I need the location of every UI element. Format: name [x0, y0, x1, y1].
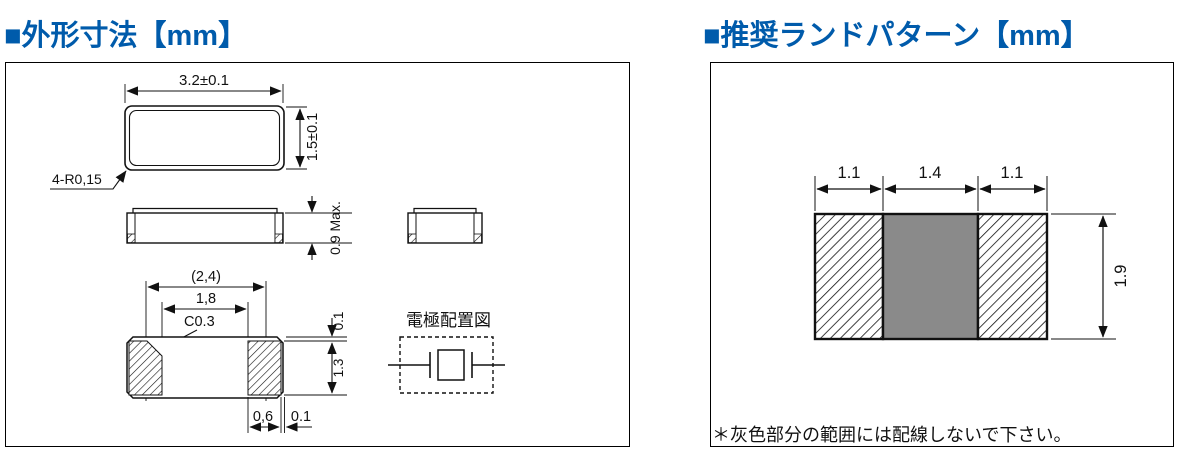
electrode-diagram-label: 電極配置図 [406, 306, 491, 331]
dim-text-pad-height: 1.3 [331, 359, 346, 378]
keepout-note: ＊灰色部分の範囲には配線しないで下さい。 [712, 421, 1071, 447]
right-electrode-pad [248, 341, 281, 395]
dim-text-side-offset: 0.1 [291, 409, 311, 425]
land-right-pad [978, 214, 1047, 339]
crystal-element [438, 350, 464, 380]
electrode-arrangement-diagram [388, 337, 505, 393]
dim-text-top-offset: 0.1 [331, 312, 346, 331]
package-side-view: 0.9 Max. [127, 196, 352, 260]
dim-text-overall-electrode: (2,4) [191, 269, 221, 285]
keepout-area [883, 214, 978, 339]
end-view-body [408, 213, 482, 243]
package-bottom-view: (2,4) 1,8 C0.3 0.1 1.3 0,6 0.1 [127, 269, 347, 433]
land-left-pad [815, 214, 883, 339]
dim-text-inner-electrode: 1,8 [196, 291, 216, 307]
technical-drawing-svg: 3.2±0.1 1.5±0.1 4-R0,15 0.9 Max. [0, 0, 1178, 451]
electrode-hatch [474, 234, 482, 243]
dim-text-center-width: 1.4 [919, 164, 942, 182]
dim-text-pad-width: 0,6 [253, 409, 273, 425]
datasheet-page: { "colors": { "accent_blue": "#005BAB", … [0, 0, 1178, 451]
dim-text-top-width: 3.2±0.1 [179, 72, 229, 89]
package-top-view: 3.2±0.1 1.5±0.1 4-R0,15 [50, 72, 321, 189]
dim-text-left-pad-width: 1.1 [838, 164, 861, 182]
dim-text-max-height: 0.9 Max. [327, 201, 343, 255]
package-end-view [408, 209, 482, 244]
electrode-hatch [128, 234, 136, 243]
dim-text-top-height: 1.5±0.1 [305, 113, 321, 161]
electrode-hatch [275, 234, 283, 243]
chamfer-label: C0.3 [184, 314, 215, 330]
electrode-hatch [409, 234, 417, 243]
land-pattern-drawing: 1.1 1.4 1.1 1.9 [815, 164, 1130, 339]
side-view-body [127, 213, 283, 243]
dim-text-pattern-height: 1.9 [1112, 265, 1130, 288]
top-view-body-outer [125, 106, 284, 170]
corner-radius-label: 4-R0,15 [52, 171, 102, 187]
dim-text-right-pad-width: 1.1 [1001, 164, 1024, 182]
